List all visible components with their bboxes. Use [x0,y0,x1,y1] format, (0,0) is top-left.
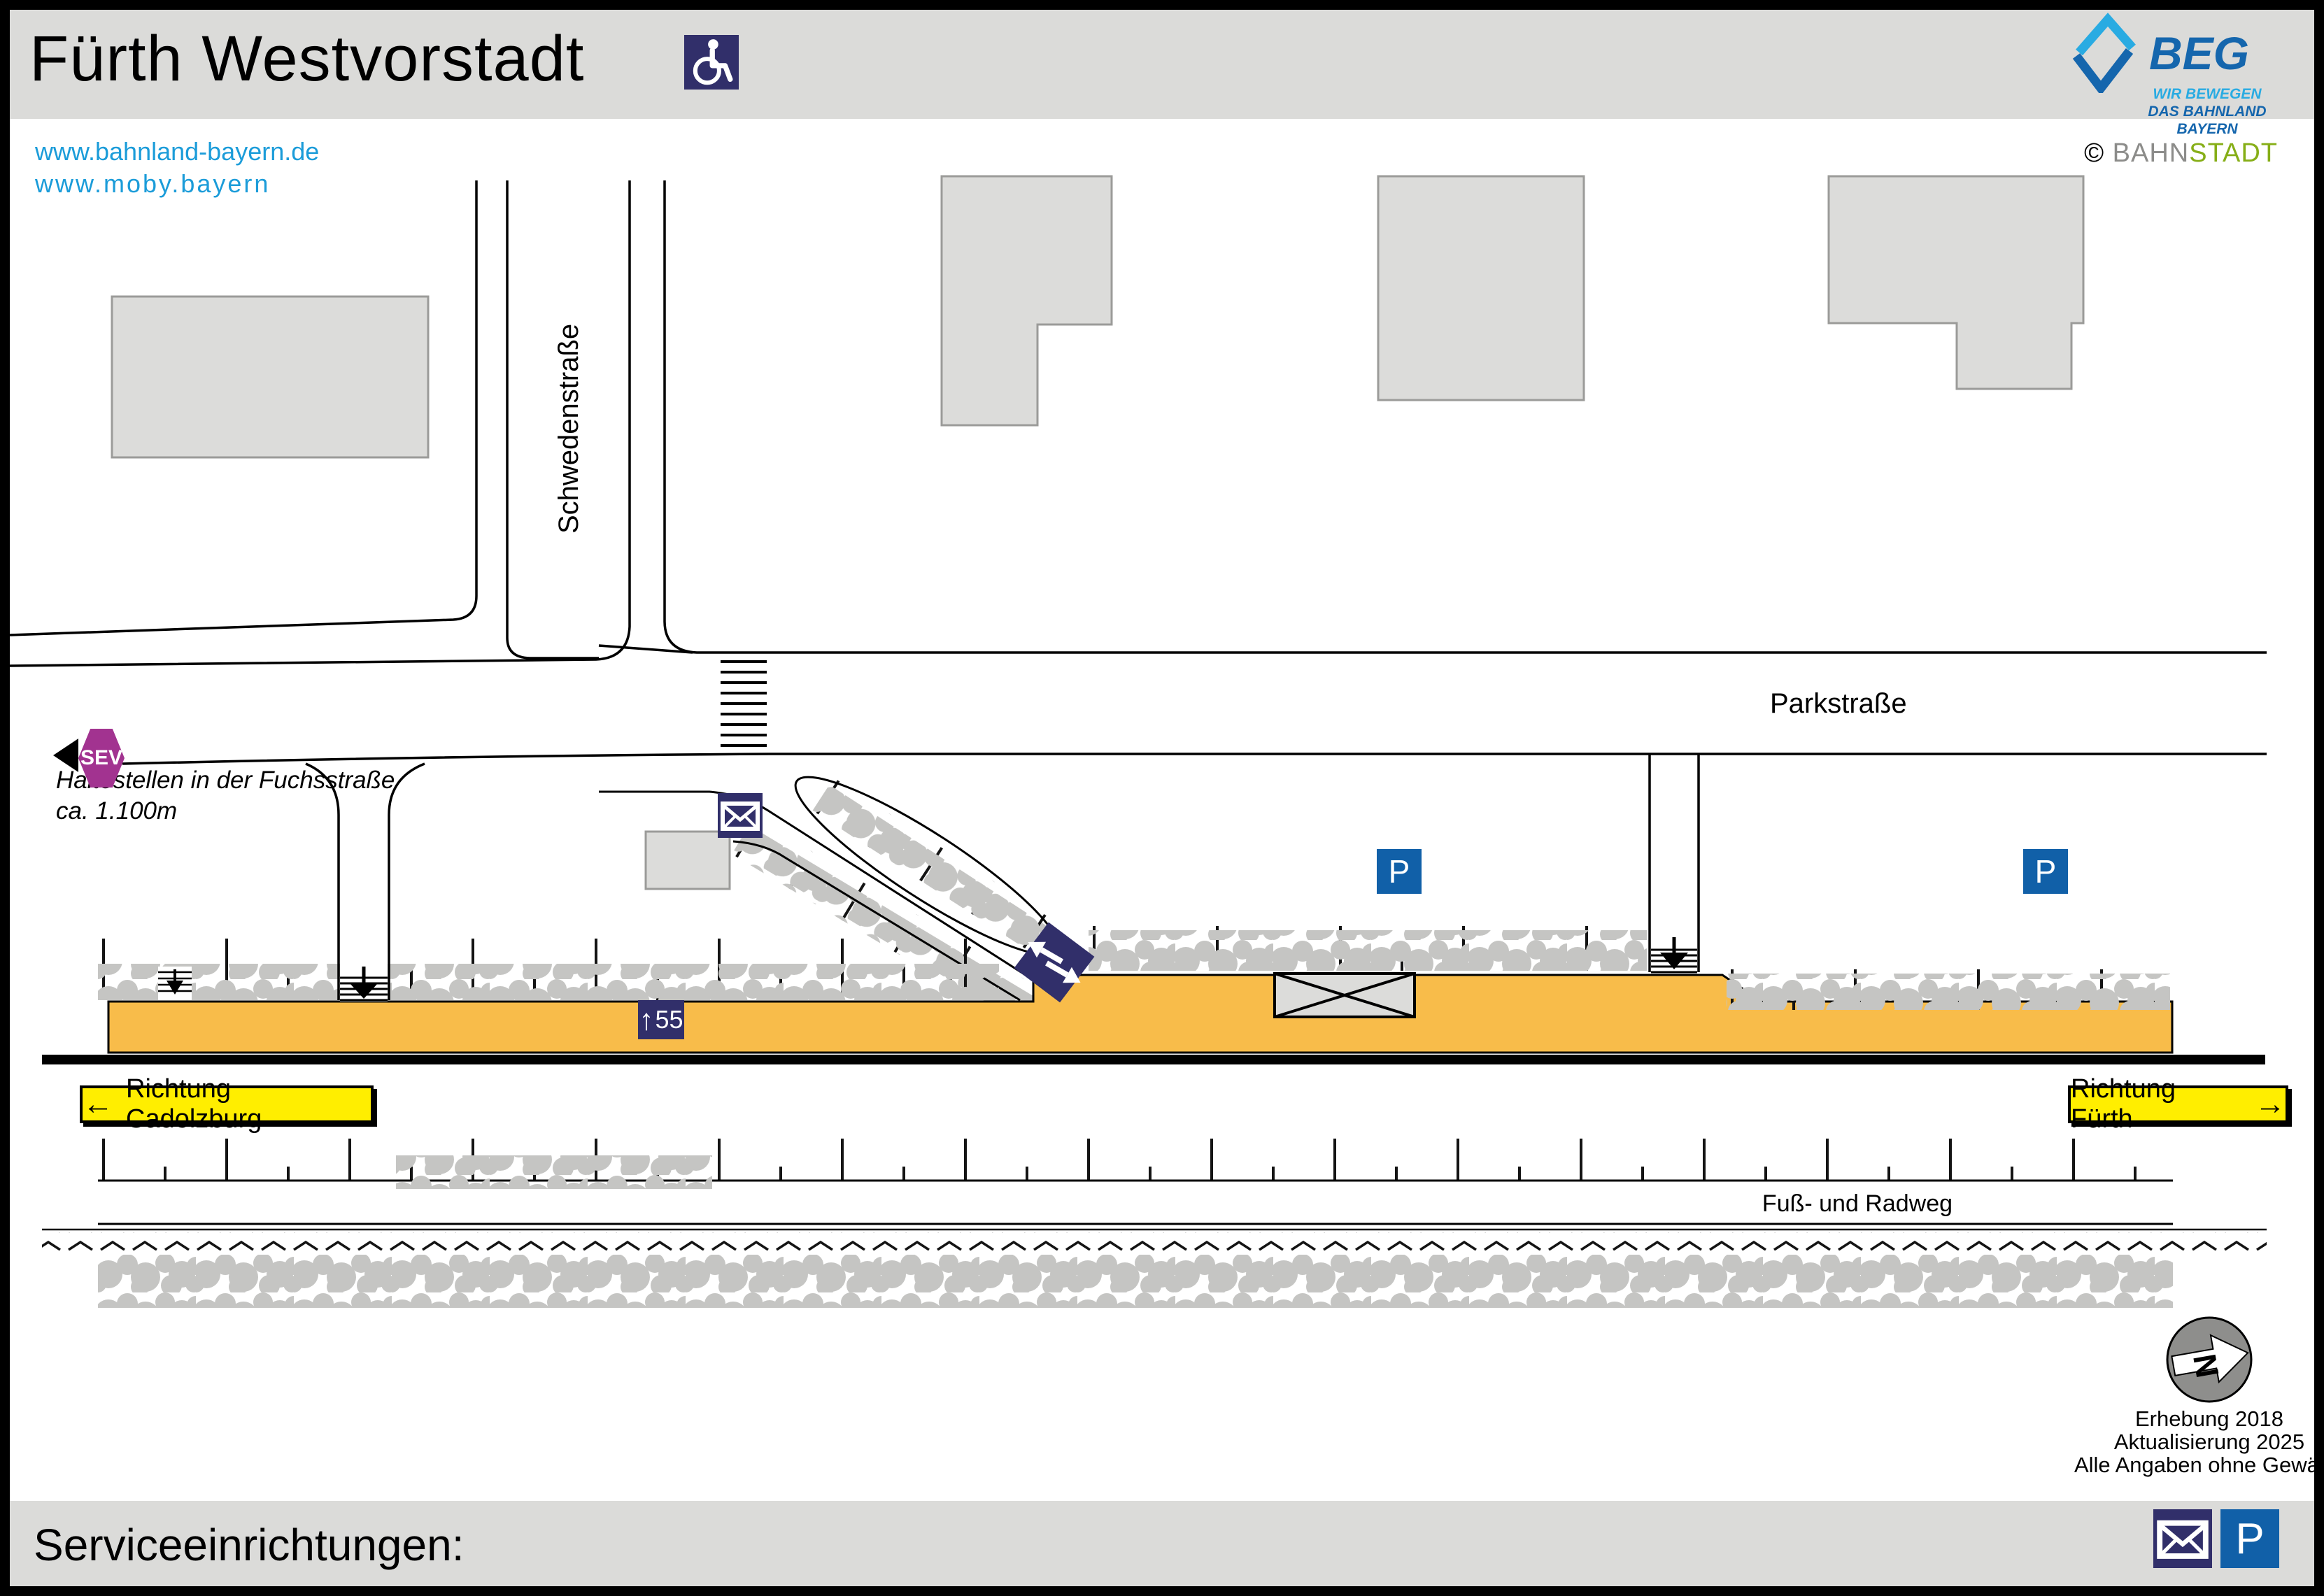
buildings [112,176,2083,889]
footpath-label: Fuß- und Radweg [1749,1190,1966,1218]
website-links: www.bahnland-bayern.de www.moby.bayern [35,136,319,200]
station-map-page: N Fürth Westvorstadt BEG WIR BEWEGEN DAS… [0,0,2324,1596]
platform-height-value: 55 [655,1005,683,1034]
sev-note-line2: ca. 1.100m [56,797,177,825]
stairs-right [1650,754,1699,972]
direction-box-cadolzburg: ← Richtung Cadolzburg [80,1085,374,1123]
up-arrow-icon: ↑ [639,1003,653,1036]
page-title: Fürth Westvorstadt [29,22,584,96]
building [112,297,428,457]
sev-label: SEV [80,746,122,770]
parking-letter: P [1389,853,1410,890]
footer-label: Serviceeinrichtungen: [34,1519,464,1571]
border-bottom [0,1586,2324,1596]
link-moby-bayern[interactable]: www.moby.bayern [35,168,319,200]
stairs-west [158,967,192,1000]
envelope-icon [2153,1509,2212,1568]
bahnstadt-green: STADT [2189,138,2278,168]
left-arrow-icon: ← [83,1087,113,1122]
street-label-parkstrasse: Parkstraße [1770,688,1907,720]
building [942,176,1112,425]
north-arrow-icon: N [2167,1318,2252,1402]
fence-row [98,1139,2173,1189]
embankment-chevrons [42,1232,2267,1251]
parking-letter: P [2035,853,2057,890]
border-top [0,0,2324,10]
beg-logo-icon [2069,13,2139,97]
note-line: Alle Angaben ohne Gewähr! [2062,1453,2324,1476]
parking-icon: P [2023,849,2068,894]
direction-box-fuerth: Richtung Fürth → [2068,1085,2288,1123]
envelope-icon [718,793,763,838]
parking-icon: P [1377,849,1422,894]
beg-taglines: WIR BEWEGEN DAS BAHNLAND BAYERN [2120,85,2295,138]
left-triangle-icon [53,739,78,772]
station-map: N [0,0,2324,1596]
note-line: Erhebung 2018 [2062,1407,2324,1430]
beg-tagline-1: WIR BEWEGEN [2120,85,2295,103]
crosswalk [721,662,767,746]
direction-left-label: Richtung Cadolzburg [126,1074,371,1134]
bahnstadt-gray: BAHN [2113,138,2190,168]
direction-right-label: Richtung Fürth [2071,1074,2242,1134]
note-line: Aktualisierung 2025 [2062,1430,2324,1453]
platform-height-sign: ↑ 55 [638,1000,684,1039]
footpath [42,1224,2267,1308]
bahnstadt-credit: © BAHNSTADT [2084,138,2278,169]
link-bahnland-bayern[interactable]: www.bahnland-bayern.de [35,136,319,168]
building [1829,176,2083,389]
hedge-strip [98,1255,2173,1308]
parking-letter: P [2235,1514,2264,1564]
wheelchair-icon [684,35,739,90]
copyright-symbol: © [2084,138,2104,168]
parking-icon: P [2220,1509,2279,1568]
railway-track [42,1055,2265,1064]
border-right [2314,0,2324,1596]
small-building [646,832,730,889]
beg-tagline-2: DAS BAHNLAND BAYERN [2120,103,2295,138]
border-left [0,0,10,1596]
beg-wordmark: BEG [2149,27,2249,80]
shelter [1275,974,1415,1017]
street-label-schwedenstrasse: Schwedenstraße [553,324,583,534]
building [1378,176,1584,400]
right-arrow-icon: → [2255,1087,2286,1122]
survey-notes: Erhebung 2018 Aktualisierung 2025 Alle A… [2062,1407,2324,1476]
